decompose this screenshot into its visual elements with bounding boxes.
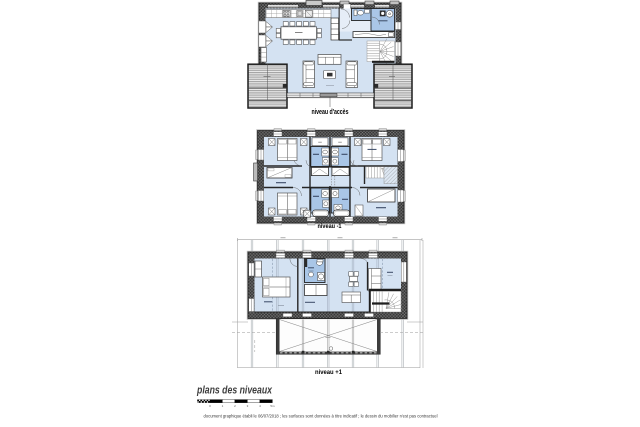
svg-text:niveau +1: niveau +1 (315, 369, 342, 376)
svg-text:niveau d'accès: niveau d'accès (312, 107, 349, 116)
svg-text:plans des niveaux: plans des niveaux (196, 385, 273, 397)
svg-text:niveau -1: niveau -1 (318, 223, 342, 230)
svg-text:5m: 5m (270, 404, 275, 408)
svg-text:document graphique établi le 0: document graphique établi le 06/07/2018 … (204, 413, 438, 418)
